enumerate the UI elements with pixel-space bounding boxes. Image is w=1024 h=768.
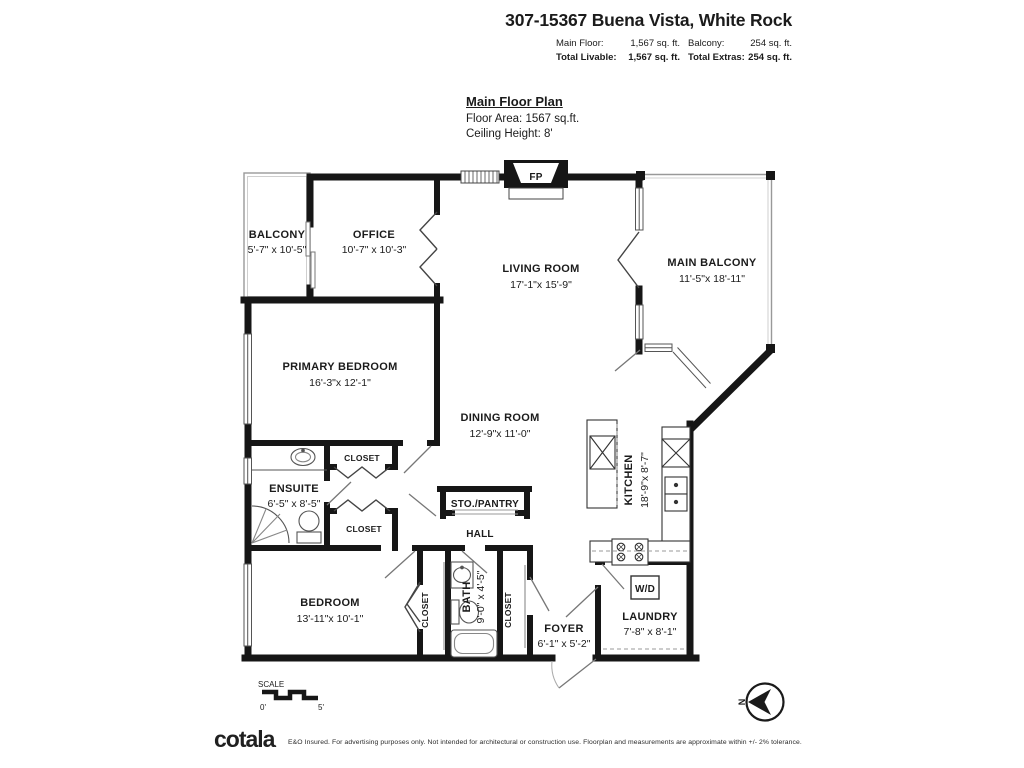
room-label-sto-pantry: STO./PANTRY — [451, 499, 519, 510]
fireplace-label: FP — [529, 172, 542, 183]
bath-fixtures — [451, 562, 497, 657]
disclaimer-text: E&O Insured. For advertising purposes on… — [288, 739, 802, 746]
room-label-closet-right: CLOSET — [503, 592, 513, 628]
floor-plan-drawing: FP — [0, 0, 1024, 768]
brand-mark: . — [274, 740, 276, 749]
room-dims-office: 10'-7" x 10'-3" — [342, 244, 407, 256]
washer-dryer-label: W/D — [635, 584, 655, 595]
brand-logo: cotala. — [214, 726, 277, 753]
room-label-main-balcony: MAIN BALCONY — [667, 257, 757, 269]
scale-start: 0' — [260, 703, 266, 712]
room-dims-bedroom: 13'-11"x 10'-1" — [297, 613, 364, 625]
room-dims-living-room: 17'-1"x 15'-9" — [510, 279, 572, 291]
ensuite-fixtures — [252, 449, 327, 544]
room-label-hall: HALL — [466, 529, 493, 540]
room-dims-bath: 9'-0" x 4'-5" — [475, 570, 487, 623]
room-label-closet-top: CLOSET — [344, 453, 380, 463]
room-dims-laundry: 7'-8" x 8'-1" — [624, 626, 677, 638]
room-dims-balcony: 5'-7" x 10'-5" — [248, 244, 307, 256]
room-dims-kitchen: 18'-9"x 8'-7" — [639, 452, 651, 508]
fireplace: FP — [504, 160, 568, 199]
pantry-shelf — [452, 510, 518, 514]
scale-bar: SCALE 0' 5' — [258, 680, 324, 712]
brand-text: cotala — [214, 726, 274, 752]
north-arrow-icon — [748, 689, 771, 715]
scale-end: 5' — [318, 703, 324, 712]
room-dims-foyer: 6'-1" x 5'-2" — [538, 638, 591, 650]
entry-door-arc — [552, 661, 559, 688]
room-label-ensuite: ENSUITE — [269, 483, 319, 495]
room-label-living-room: LIVING ROOM — [502, 263, 579, 275]
room-dims-dining-room: 12'-9"x 11'-0" — [470, 428, 531, 440]
room-label-bedroom: BEDROOM — [300, 597, 360, 609]
room-label-kitchen: KITCHEN — [623, 455, 635, 506]
room-label-bath: BATH — [461, 582, 473, 613]
north-compass: N — [737, 684, 784, 721]
north-label: N — [737, 699, 747, 706]
room-label-dining-room: DINING ROOM — [460, 412, 539, 424]
room-dims-ensuite: 6'-5" x 8'-5" — [268, 498, 321, 510]
room-label-foyer: FOYER — [544, 623, 583, 635]
floor-plan-page: 307-15367 Buena Vista, White Rock Main F… — [0, 0, 1024, 768]
room-label-office: OFFICE — [353, 229, 395, 241]
room-label-balcony: BALCONY — [249, 229, 306, 241]
room-dims-primary-bedroom: 16'-3"x 12'-1" — [309, 377, 371, 389]
room-label-closet-bottom: CLOSET — [346, 524, 382, 534]
room-dims-main-balcony: 11'-5"x 18'-11" — [679, 273, 745, 285]
room-label-primary-bedroom: PRIMARY BEDROOM — [282, 361, 397, 373]
hatch-window — [461, 171, 499, 183]
room-label-laundry: LAUNDRY — [622, 611, 678, 623]
room-label-closet-left: CLOSET — [420, 592, 430, 628]
sliding-door — [306, 222, 315, 288]
scale-label: SCALE — [258, 680, 284, 689]
